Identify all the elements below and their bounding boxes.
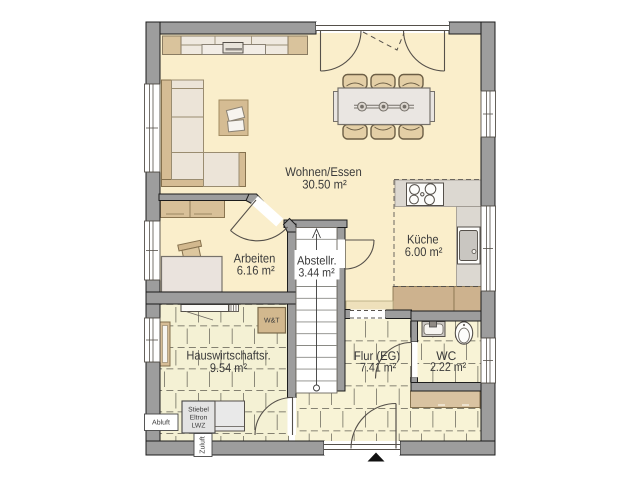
svg-text:Eltron: Eltron <box>190 415 208 422</box>
svg-text:Zuluft: Zuluft <box>199 436 207 454</box>
svg-text:6.16 m²: 6.16 m² <box>237 263 275 277</box>
svg-text:6.00 m²: 6.00 m² <box>405 245 443 259</box>
svg-text:Abluft: Abluft <box>152 419 170 427</box>
svg-text:Stiebel: Stiebel <box>188 407 209 414</box>
svg-text:LWZ: LWZ <box>192 423 206 430</box>
svg-text:W&T: W&T <box>264 318 280 325</box>
svg-text:3.44 m²: 3.44 m² <box>298 265 334 279</box>
svg-text:9.54 m²: 9.54 m² <box>210 361 247 375</box>
svg-text:30.50 m²: 30.50 m² <box>302 177 347 191</box>
svg-text:7.41 m²: 7.41 m² <box>360 360 396 374</box>
svg-text:2.22 m²: 2.22 m² <box>430 360 466 374</box>
